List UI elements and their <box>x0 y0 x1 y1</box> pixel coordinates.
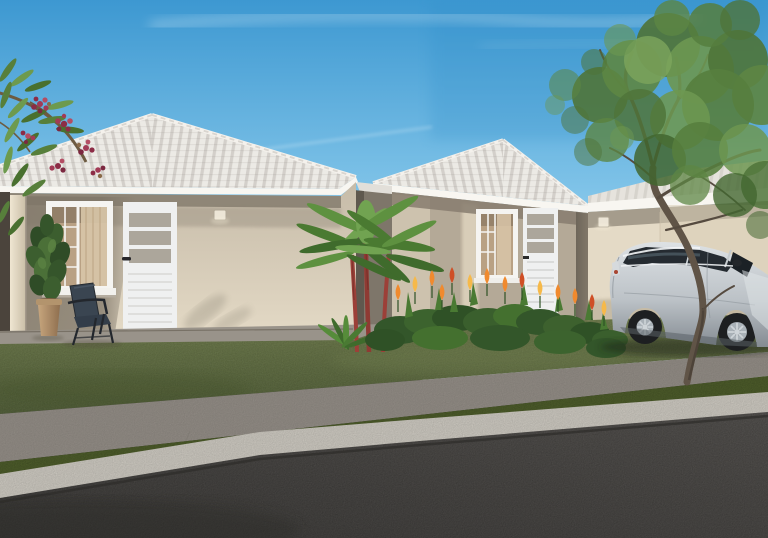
pot-rim <box>36 299 62 305</box>
rear-wheel <box>628 310 662 344</box>
tail-lamp-red <box>614 270 618 274</box>
left-door-pane <box>129 213 171 227</box>
right-window-sill <box>474 278 520 283</box>
side-mirror <box>732 260 742 267</box>
right-door-pane <box>527 228 554 239</box>
right-door-handle <box>523 256 529 259</box>
pot-body <box>38 305 60 336</box>
left-sconce <box>211 210 229 225</box>
left-door <box>121 202 179 334</box>
left-door-pane <box>129 231 171 245</box>
porch-column <box>10 195 26 339</box>
left-door-pane <box>129 249 171 263</box>
left-door-slats <box>128 274 172 322</box>
left-window-curtain <box>81 207 107 286</box>
left-door-handle <box>122 257 131 261</box>
right-door-pane <box>527 214 554 225</box>
right-door-pane <box>527 242 554 253</box>
right-door <box>522 208 560 319</box>
right-window-curtain <box>497 214 511 275</box>
sconce-glow <box>211 218 229 225</box>
sconce-glow <box>595 224 611 230</box>
scene-house-exterior <box>0 0 768 538</box>
right-window <box>474 209 520 283</box>
